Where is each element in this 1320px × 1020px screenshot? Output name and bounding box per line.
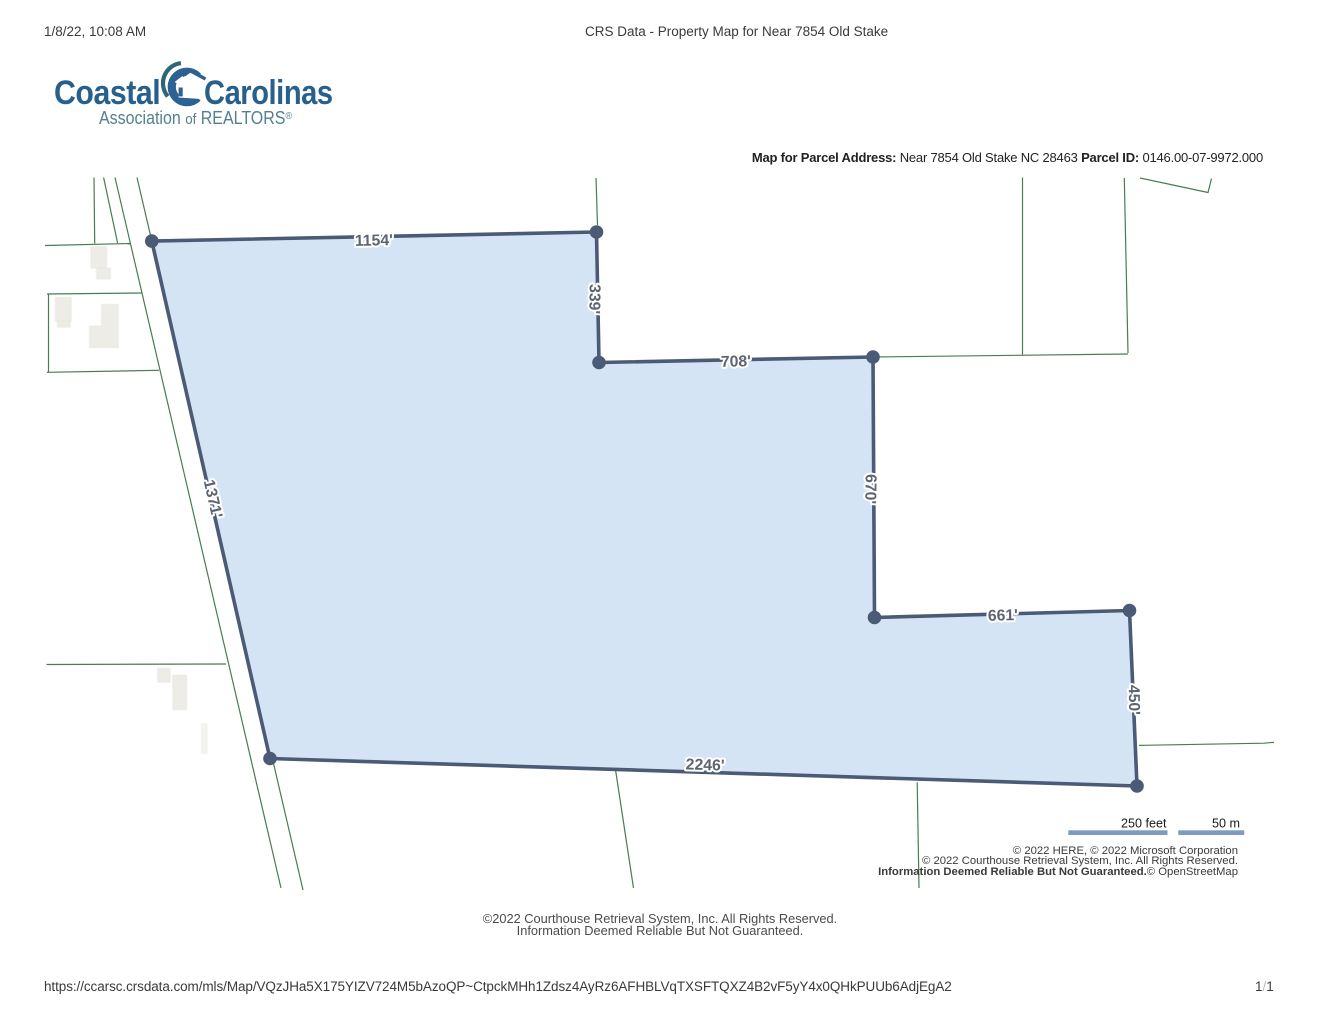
svg-text:670': 670' [861,474,879,504]
svg-text:708': 708' [721,353,752,371]
svg-text:250 feet: 250 feet [1121,817,1167,831]
svg-text:1154': 1154' [355,232,393,250]
svg-text:2246': 2246' [685,756,724,774]
svg-text:661': 661' [988,607,1019,625]
svg-text:50 m: 50 m [1212,817,1240,831]
svg-text:339': 339' [585,284,603,314]
svg-text:450': 450' [1125,685,1143,715]
